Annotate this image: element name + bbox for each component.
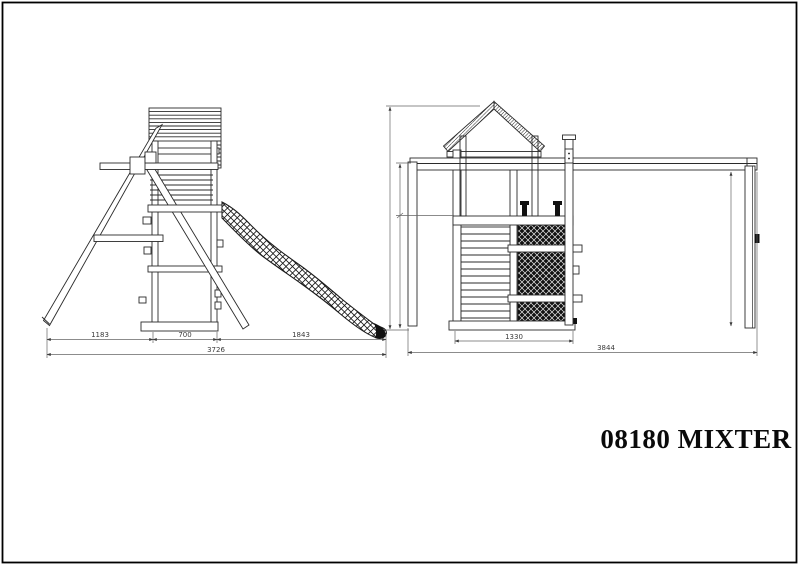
tower-front bbox=[449, 150, 582, 330]
swing-beam bbox=[410, 158, 757, 170]
upper-slat-panel bbox=[149, 108, 221, 141]
technical-drawing: 1183 700 1843 3726 bbox=[0, 0, 800, 566]
handle-top bbox=[553, 201, 562, 205]
page-border bbox=[3, 3, 797, 563]
roof-left-slope bbox=[444, 102, 495, 152]
side-view: 1183 700 1843 3726 bbox=[42, 108, 386, 358]
ladder-rung bbox=[144, 247, 151, 254]
gable-roof bbox=[444, 102, 545, 158]
swing-post-left bbox=[408, 162, 417, 326]
dim-label-front-tower-width: 1330 bbox=[505, 333, 523, 341]
product-title: 08180 MIXTER bbox=[581, 424, 800, 455]
handle-stem bbox=[522, 205, 527, 216]
dim-label-swing-section: 1183 bbox=[91, 331, 109, 339]
grab-handles bbox=[520, 201, 562, 216]
a-frame-crossbar bbox=[94, 235, 163, 242]
beam-joint-block bbox=[130, 157, 145, 174]
wave-slide bbox=[222, 202, 386, 339]
swing-beam-arm bbox=[100, 163, 218, 170]
dim-label-total-length: 3726 bbox=[207, 346, 225, 354]
base-plank bbox=[141, 322, 218, 331]
slide-body bbox=[222, 202, 386, 338]
tall-corner-post bbox=[565, 138, 573, 325]
window-sill-rail bbox=[155, 148, 219, 154]
dim-label-front-total-length: 3844 bbox=[597, 344, 615, 352]
bracket-tab bbox=[217, 240, 223, 247]
handle-stem bbox=[555, 205, 560, 216]
bolt-dot bbox=[568, 158, 570, 160]
bracket-tab bbox=[573, 266, 579, 274]
front-base-plank bbox=[449, 321, 575, 330]
drawing-page: 1183 700 1843 3726 bbox=[0, 0, 800, 566]
a-frame-left-leg bbox=[44, 125, 163, 326]
handle-top bbox=[520, 201, 529, 205]
ladder-rung bbox=[143, 217, 151, 224]
bracket-tab bbox=[215, 302, 221, 309]
bolt-dot bbox=[568, 153, 570, 155]
slide-top-rail bbox=[148, 205, 222, 212]
swing-post-right bbox=[745, 166, 755, 328]
post-cap bbox=[563, 135, 576, 140]
platform-rail bbox=[453, 216, 573, 225]
dim-label-slide-section: 1843 bbox=[292, 331, 310, 339]
beam-joint-plate bbox=[145, 152, 156, 163]
front-view: 1330 3844 bbox=[386, 102, 760, 357]
roof-right-slope bbox=[494, 102, 545, 152]
ladder-rung bbox=[139, 297, 146, 303]
beam-connector bbox=[565, 149, 573, 163]
dimensions-side: 1183 700 1843 3726 bbox=[47, 328, 386, 358]
climbing-net bbox=[518, 225, 567, 322]
dim-label-tower-width: 700 bbox=[178, 331, 191, 339]
